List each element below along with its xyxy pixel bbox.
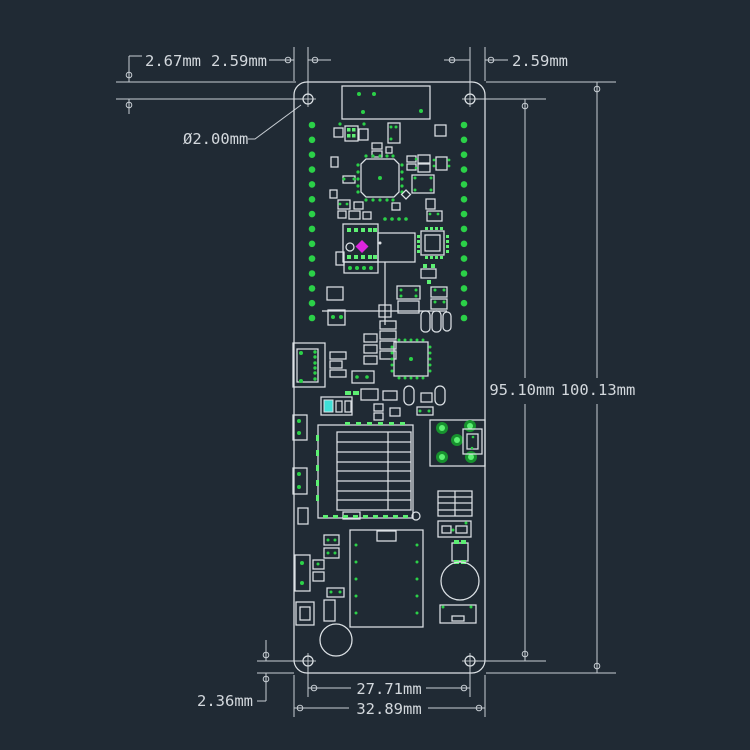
esp32-chip xyxy=(391,339,432,380)
dim-label-left-hole-offset: 2.59mm xyxy=(211,52,267,70)
gps-antenna-connector xyxy=(342,86,430,119)
sd-card-grid xyxy=(438,491,472,537)
components xyxy=(293,86,485,656)
pin-pad xyxy=(461,285,468,292)
pin-pad xyxy=(309,315,316,322)
pin-pad xyxy=(309,196,316,203)
pin-pad xyxy=(461,255,468,262)
dim-label-hole-height: 95.10mm xyxy=(489,381,554,399)
dim-label-right-hole-offset: 2.59mm xyxy=(512,52,568,70)
dim-right-group: 95.10mm 100.13mm xyxy=(476,82,635,673)
pin-pad xyxy=(309,226,316,233)
mounting-holes xyxy=(300,91,478,669)
pin-pad xyxy=(461,226,468,233)
left-edge-connectors xyxy=(293,415,310,591)
pin-pad xyxy=(461,300,468,307)
mounting-hole-top-right xyxy=(462,91,478,107)
bottom-left-cluster xyxy=(296,535,344,625)
board-outline xyxy=(294,82,485,673)
right-small-component xyxy=(452,540,468,564)
pin-pad xyxy=(461,122,468,129)
dim-label-overall-height: 100.13mm xyxy=(561,381,636,399)
battery-outline xyxy=(350,530,423,627)
pin-pad xyxy=(309,241,316,248)
dim-bottom-group: 27.71mm 32.89mm xyxy=(294,667,485,718)
pin-pad xyxy=(309,255,316,262)
pin-pad xyxy=(309,270,316,277)
pin-pad xyxy=(461,270,468,277)
pin-pad xyxy=(461,315,468,322)
pcb-cad-drawing: 2.67mm 2.59mm 2.59mm Ø2.00mm xyxy=(0,0,750,750)
status-led xyxy=(321,391,359,415)
pin-pad xyxy=(461,196,468,203)
main-ic-top xyxy=(356,154,403,201)
pin-pad xyxy=(309,151,316,158)
dim-hole-diameter-group: Ø2.00mm xyxy=(183,105,301,148)
pin-pad xyxy=(309,211,316,218)
dim-top-right-group: 2.59mm xyxy=(444,47,568,94)
reset-button xyxy=(320,624,352,656)
pin-pad xyxy=(309,122,316,129)
pin-pad xyxy=(309,285,316,292)
usb-connector xyxy=(293,343,346,387)
dim-bottom-left-group: 2.36mm xyxy=(197,640,303,710)
pin-pad xyxy=(309,300,316,307)
gps-module xyxy=(322,217,447,325)
pin-pad xyxy=(461,241,468,248)
dim-label-overall-width: 32.89mm xyxy=(356,700,421,718)
dimension-lines: 2.67mm 2.59mm 2.59mm Ø2.00mm xyxy=(116,47,635,718)
dim-top-left-group: 2.67mm 2.59mm xyxy=(116,47,331,114)
mounting-hole-bottom-left xyxy=(300,653,316,669)
pin-pad xyxy=(461,166,468,173)
top-right-cluster xyxy=(338,155,450,221)
dim-label-hole-width: 27.71mm xyxy=(356,680,421,698)
dim-label-bottom-offset: 2.36mm xyxy=(197,692,253,710)
dim-label-hole-diameter: Ø2.00mm xyxy=(183,130,248,148)
pin-pad xyxy=(309,166,316,173)
mounting-hole-top-left xyxy=(300,91,316,107)
pin-pad xyxy=(461,181,468,188)
pin-pad xyxy=(461,151,468,158)
mounting-hole-bottom-right xyxy=(462,653,478,669)
through-hole-pads xyxy=(436,420,477,463)
antenna-pad-square xyxy=(430,420,485,466)
orientation-marker-magenta xyxy=(356,240,369,253)
pin-pad xyxy=(461,137,468,144)
pin-pad xyxy=(309,181,316,188)
battery-clip xyxy=(316,422,420,520)
coin-cell xyxy=(441,562,479,600)
pin-pad xyxy=(309,137,316,144)
bottom-right-connector xyxy=(440,605,476,623)
dim-label-top-edge-offset: 2.67mm xyxy=(145,52,201,70)
rf-ic xyxy=(417,227,449,284)
top-passives-cluster xyxy=(330,122,446,198)
pin-pad xyxy=(461,211,468,218)
transistor xyxy=(421,269,436,278)
led-cyan xyxy=(324,400,333,412)
